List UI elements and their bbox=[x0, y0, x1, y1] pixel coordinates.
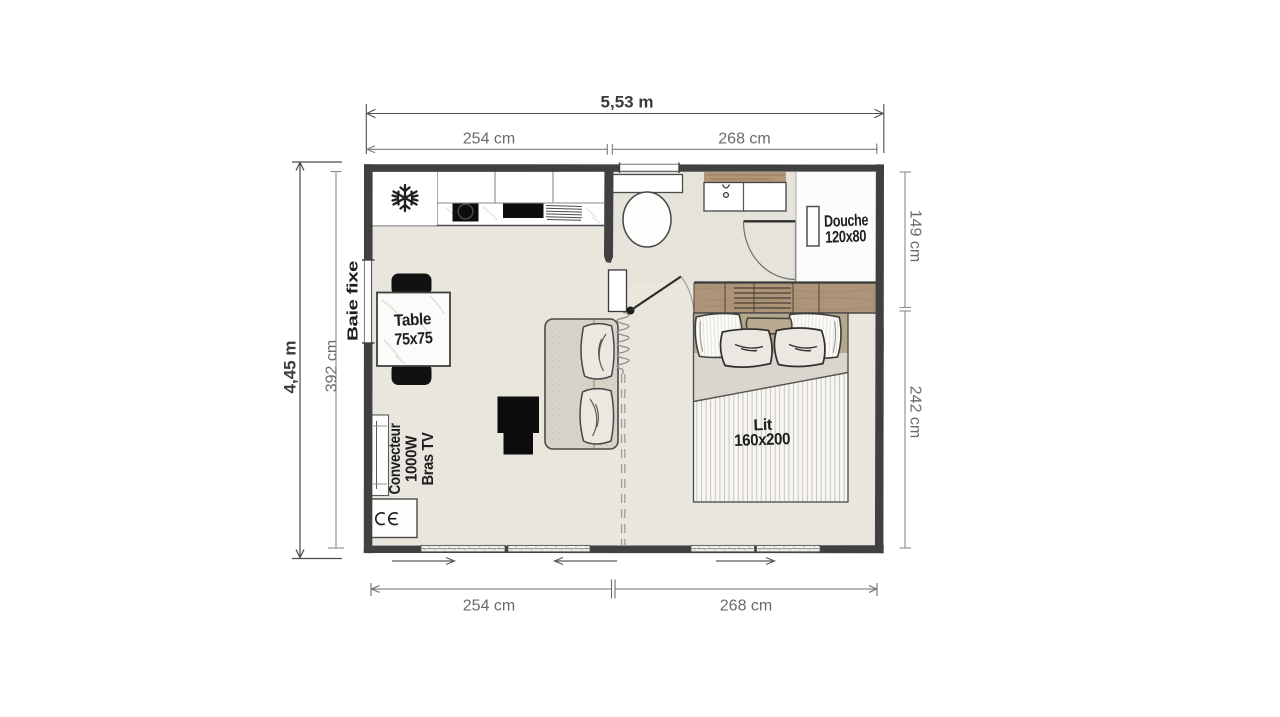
svg-text:160x200: 160x200 bbox=[734, 430, 791, 450]
svg-text:Bras TV: Bras TV bbox=[420, 431, 437, 485]
svg-text:Baie fixe: Baie fixe bbox=[346, 261, 362, 341]
svg-text:254 cm: 254 cm bbox=[463, 131, 515, 148]
svg-text:268 cm: 268 cm bbox=[720, 598, 772, 615]
svg-text:1000W: 1000W bbox=[404, 435, 421, 482]
svg-text:392 cm: 392 cm bbox=[324, 340, 341, 392]
svg-text:Convecteur: Convecteur bbox=[387, 423, 404, 494]
svg-text:75x75: 75x75 bbox=[394, 329, 433, 349]
svg-text:4,45 m: 4,45 m bbox=[281, 341, 300, 394]
svg-text:5,53 m: 5,53 m bbox=[601, 93, 654, 112]
svg-text:149 cm: 149 cm bbox=[907, 210, 924, 262]
svg-text:242 cm: 242 cm bbox=[907, 386, 924, 438]
svg-text:254 cm: 254 cm bbox=[463, 598, 515, 615]
svg-text:Table: Table bbox=[394, 310, 432, 330]
svg-text:120x80: 120x80 bbox=[825, 227, 867, 246]
svg-text:268 cm: 268 cm bbox=[718, 131, 770, 148]
